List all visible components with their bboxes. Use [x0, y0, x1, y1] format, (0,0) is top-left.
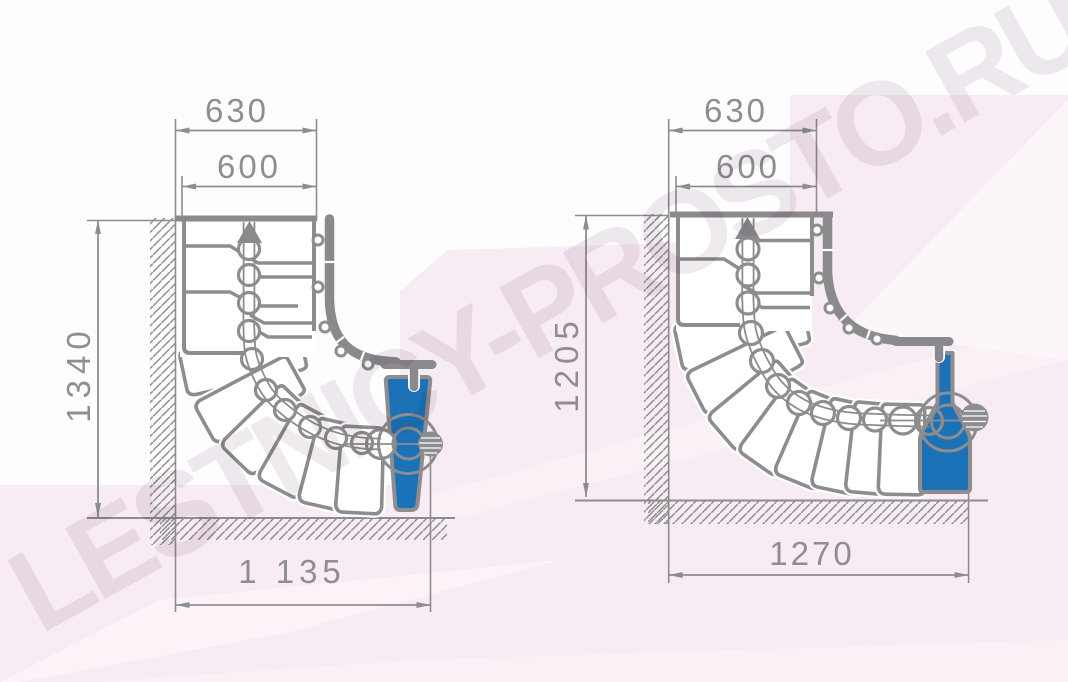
svg-text:1270: 1270 [769, 535, 854, 572]
svg-text:630: 630 [205, 92, 269, 129]
svg-text:600: 600 [217, 148, 281, 185]
svg-text:1340: 1340 [60, 325, 97, 422]
svg-text:1 135: 1 135 [238, 553, 346, 590]
